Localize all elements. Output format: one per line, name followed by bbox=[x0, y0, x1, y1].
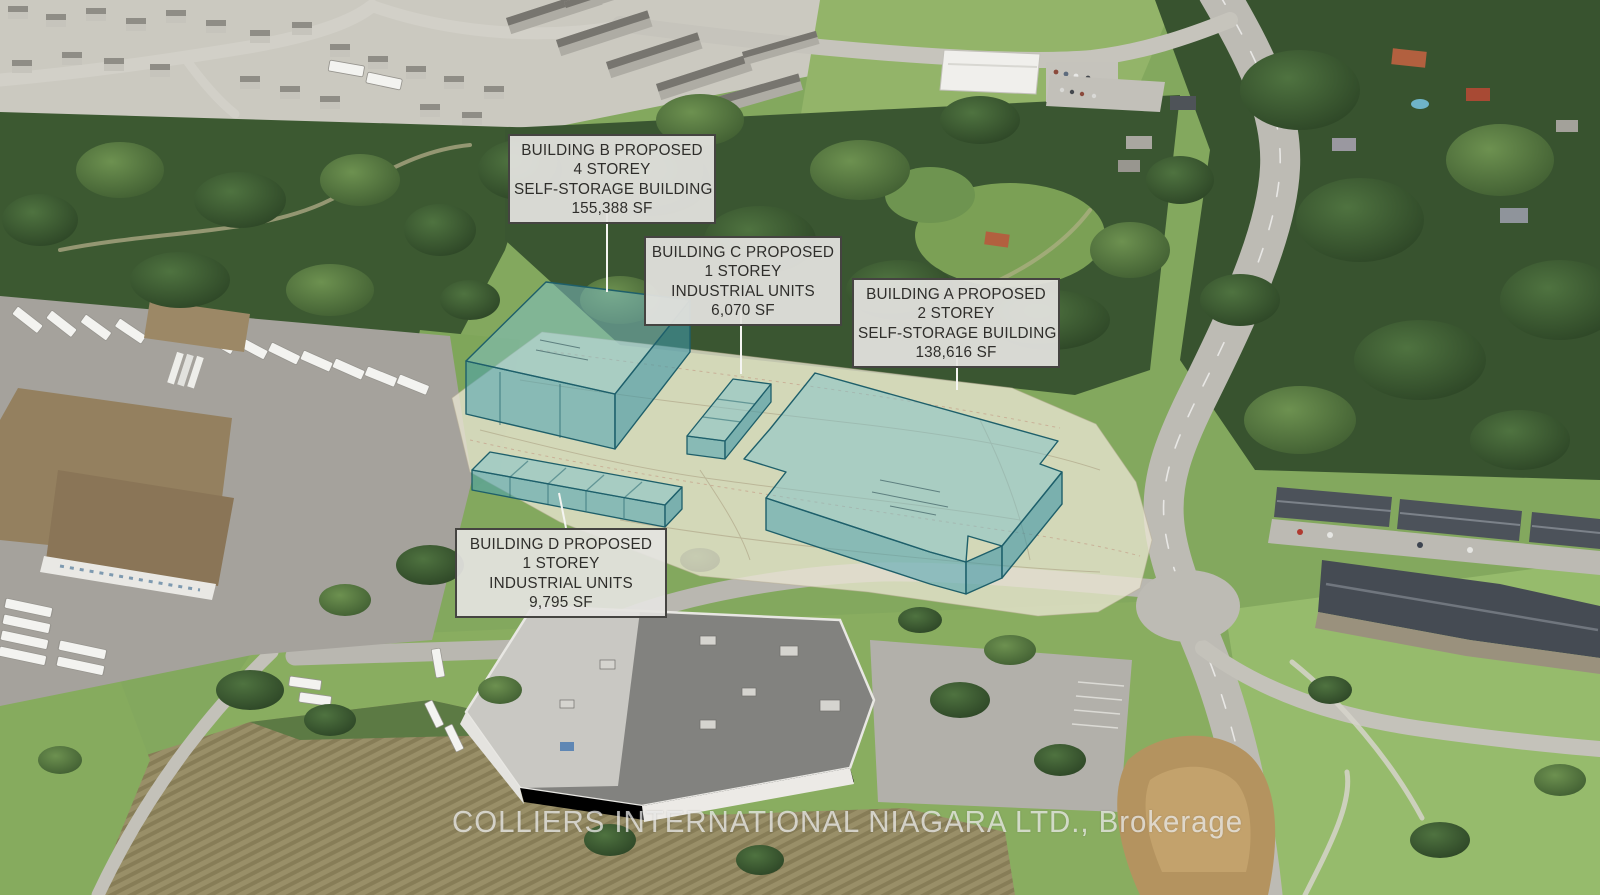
brokerage-watermark: COLLIERS INTERNATIONAL NIAGARA LTD., Bro… bbox=[452, 804, 1243, 840]
label-building-c: BUILDING C PROPOSED 1 STOREY INDUSTRIAL … bbox=[644, 236, 842, 326]
label-building-a-line-3: SELF-STORAGE BUILDING bbox=[858, 324, 1054, 343]
label-building-c-line-1: BUILDING C PROPOSED bbox=[650, 243, 836, 262]
label-building-c-line-4: 6,070 SF bbox=[650, 301, 836, 320]
label-building-d: BUILDING D PROPOSED 1 STOREY INDUSTRIAL … bbox=[455, 528, 667, 618]
label-building-a-line-2: 2 STOREY bbox=[858, 304, 1054, 323]
aerial-site-plan: BUILDING B PROPOSED 4 STOREY SELF-STORAG… bbox=[0, 0, 1600, 895]
label-building-c-line-2: 1 STOREY bbox=[650, 262, 836, 281]
label-building-a: BUILDING A PROPOSED 2 STOREY SELF-STORAG… bbox=[852, 278, 1060, 368]
label-building-d-line-3: INDUSTRIAL UNITS bbox=[461, 574, 661, 593]
label-building-b-line-2: 4 STOREY bbox=[514, 160, 710, 179]
label-building-b-line-4: 155,388 SF bbox=[514, 199, 710, 218]
label-building-b-line-3: SELF-STORAGE BUILDING bbox=[514, 180, 710, 199]
label-building-b-line-1: BUILDING B PROPOSED bbox=[514, 141, 710, 160]
label-building-c-line-3: INDUSTRIAL UNITS bbox=[650, 282, 836, 301]
label-building-d-line-2: 1 STOREY bbox=[461, 554, 661, 573]
aerial-photo bbox=[0, 0, 1600, 895]
label-building-a-line-4: 138,616 SF bbox=[858, 343, 1054, 362]
label-building-b: BUILDING B PROPOSED 4 STOREY SELF-STORAG… bbox=[508, 134, 716, 224]
label-building-d-line-4: 9,795 SF bbox=[461, 593, 661, 612]
label-building-d-line-1: BUILDING D PROPOSED bbox=[461, 535, 661, 554]
label-building-a-line-1: BUILDING A PROPOSED bbox=[858, 285, 1054, 304]
